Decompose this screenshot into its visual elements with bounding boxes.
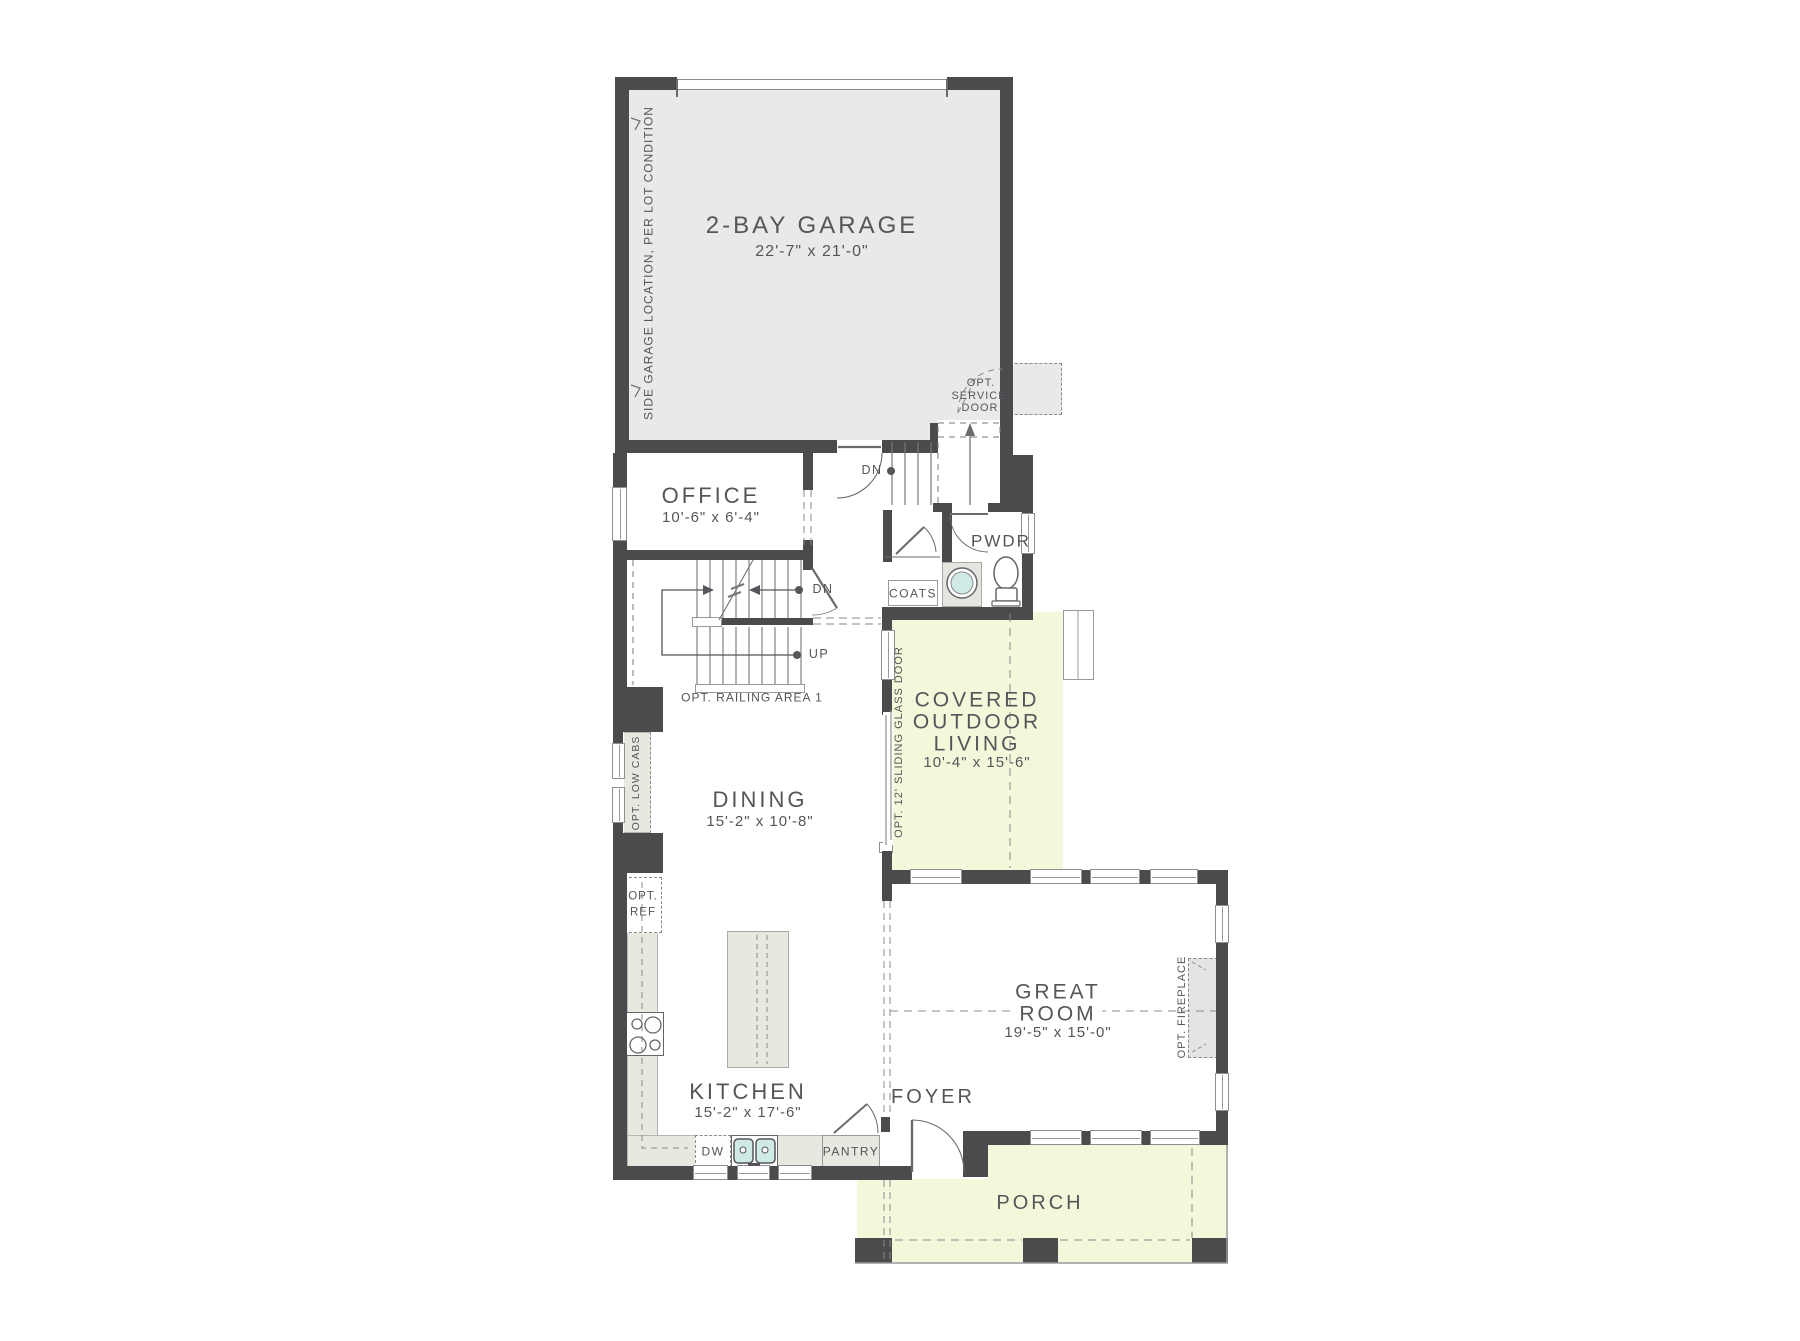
opt-railing-label: OPT. RAILING AREA 1 [681,691,823,704]
porch-label: PORCH [996,1192,1083,1214]
outdoor-living-label: OUTDOOR [913,710,1041,733]
wall-segment [613,550,813,560]
opt-low-cabs-label: OPT. LOW CABS [631,736,643,831]
front-door [912,1120,964,1172]
wall-segment [613,687,663,732]
window [910,869,962,884]
wall-segment [615,77,677,90]
wall-segment [613,560,627,687]
wall-segment [883,607,1033,620]
wall-segment [613,822,623,833]
wall-segment [613,453,627,487]
dn-label-garage: DN [861,464,882,478]
opt-ref-label: REF [630,907,656,920]
window [612,743,625,779]
garage-floor [629,420,937,440]
great-room-label: GREAT [1015,980,1101,1003]
porch-post [855,1238,892,1263]
window [1090,1130,1142,1145]
toilet [992,557,1020,606]
garage-dims: 22'-7" x 21'-0" [755,243,868,261]
wall-segment [615,440,837,453]
wall-segment [882,607,892,632]
wall-segment [722,618,813,625]
outdoor-living-dims: 10'-4" x 15'-6" [923,755,1030,772]
porch-post [1192,1238,1228,1263]
opt-service-door-label: OPT. [967,377,995,389]
opt-service-door-label: DOOR [962,402,999,414]
outdoor-bump-out [1063,610,1094,680]
great-room-dims: 19'-5" x 15'-0" [1004,1025,1111,1042]
garage-door [677,79,947,90]
pantry-door [834,1104,878,1133]
window [1215,905,1229,943]
opt-service-door-label: SERVICE [951,390,1006,402]
opt-sliding-door-label: OPT. 12' SLIDING GLASS DOOR [893,646,905,838]
wall-segment [803,453,813,490]
opt-fireplace-label: OPT. FIREPLACE [1176,956,1188,1059]
coats-door [885,527,940,557]
kitchen-sink-unit [731,1135,778,1169]
window [693,1165,728,1180]
kitchen-label: KITCHEN [689,1080,807,1104]
window [1150,1130,1200,1145]
wall-segment [882,678,892,715]
floor-plan: SIDE GARAGE LOCATION, PER LOT CONDITION … [0,0,1800,1341]
wall-segment [881,1117,890,1132]
window [1150,869,1198,884]
window [1215,1073,1229,1111]
great-room-label: ROOM [1013,1002,1102,1025]
outdoor-living-label: COVERED [915,688,1040,711]
window [1090,869,1140,884]
pwdr-vanity [942,562,982,607]
wall-segment [615,77,629,453]
stair-landing [692,617,722,627]
kitchen-island [727,931,789,1068]
porch-post [1023,1238,1058,1263]
pwdr-label: PWDR [971,533,1031,552]
wall-segment [883,510,892,562]
window [737,1165,770,1180]
pantry-label: PANTRY [823,1145,880,1158]
wall-segment [613,833,663,873]
window [1030,869,1082,884]
wall-segment [930,423,938,453]
kitchen-dims: 15'-2" x 17'-6" [694,1105,801,1122]
outdoor-living-label: LIVING [934,732,1021,755]
wall-segment [963,1131,988,1177]
coats-label: COATS [889,587,937,600]
window [1030,1130,1082,1145]
garage-label: 2-BAY GARAGE [706,213,919,239]
window [612,487,627,541]
cooktop [626,1012,664,1056]
dining-dims: 15'-2" x 10'-8" [706,814,813,831]
office-dims: 10'-6" x 6'-4" [662,510,760,527]
office-label: OFFICE [662,484,761,508]
wall-segment [1000,455,1033,512]
dw-label: DW [702,1145,725,1158]
window [612,787,625,823]
window [778,1165,812,1180]
dining-label: DINING [713,788,808,812]
wall-segment [942,510,952,562]
wall-segment [803,540,813,570]
opt-fireplace [1188,958,1218,1058]
foyer-label: FOYER [891,1086,975,1108]
wall-segment [613,873,627,1166]
cased-opening [804,490,881,624]
up-label-stairs: UP [809,648,829,662]
dn-label-stairs: DN [812,583,833,597]
side-garage-note: SIDE GARAGE LOCATION, PER LOT CONDITION [642,106,655,420]
opt-refrigerator [624,877,662,933]
opt-ref-label: OPT. [628,891,658,904]
wall-segment [1000,77,1013,467]
